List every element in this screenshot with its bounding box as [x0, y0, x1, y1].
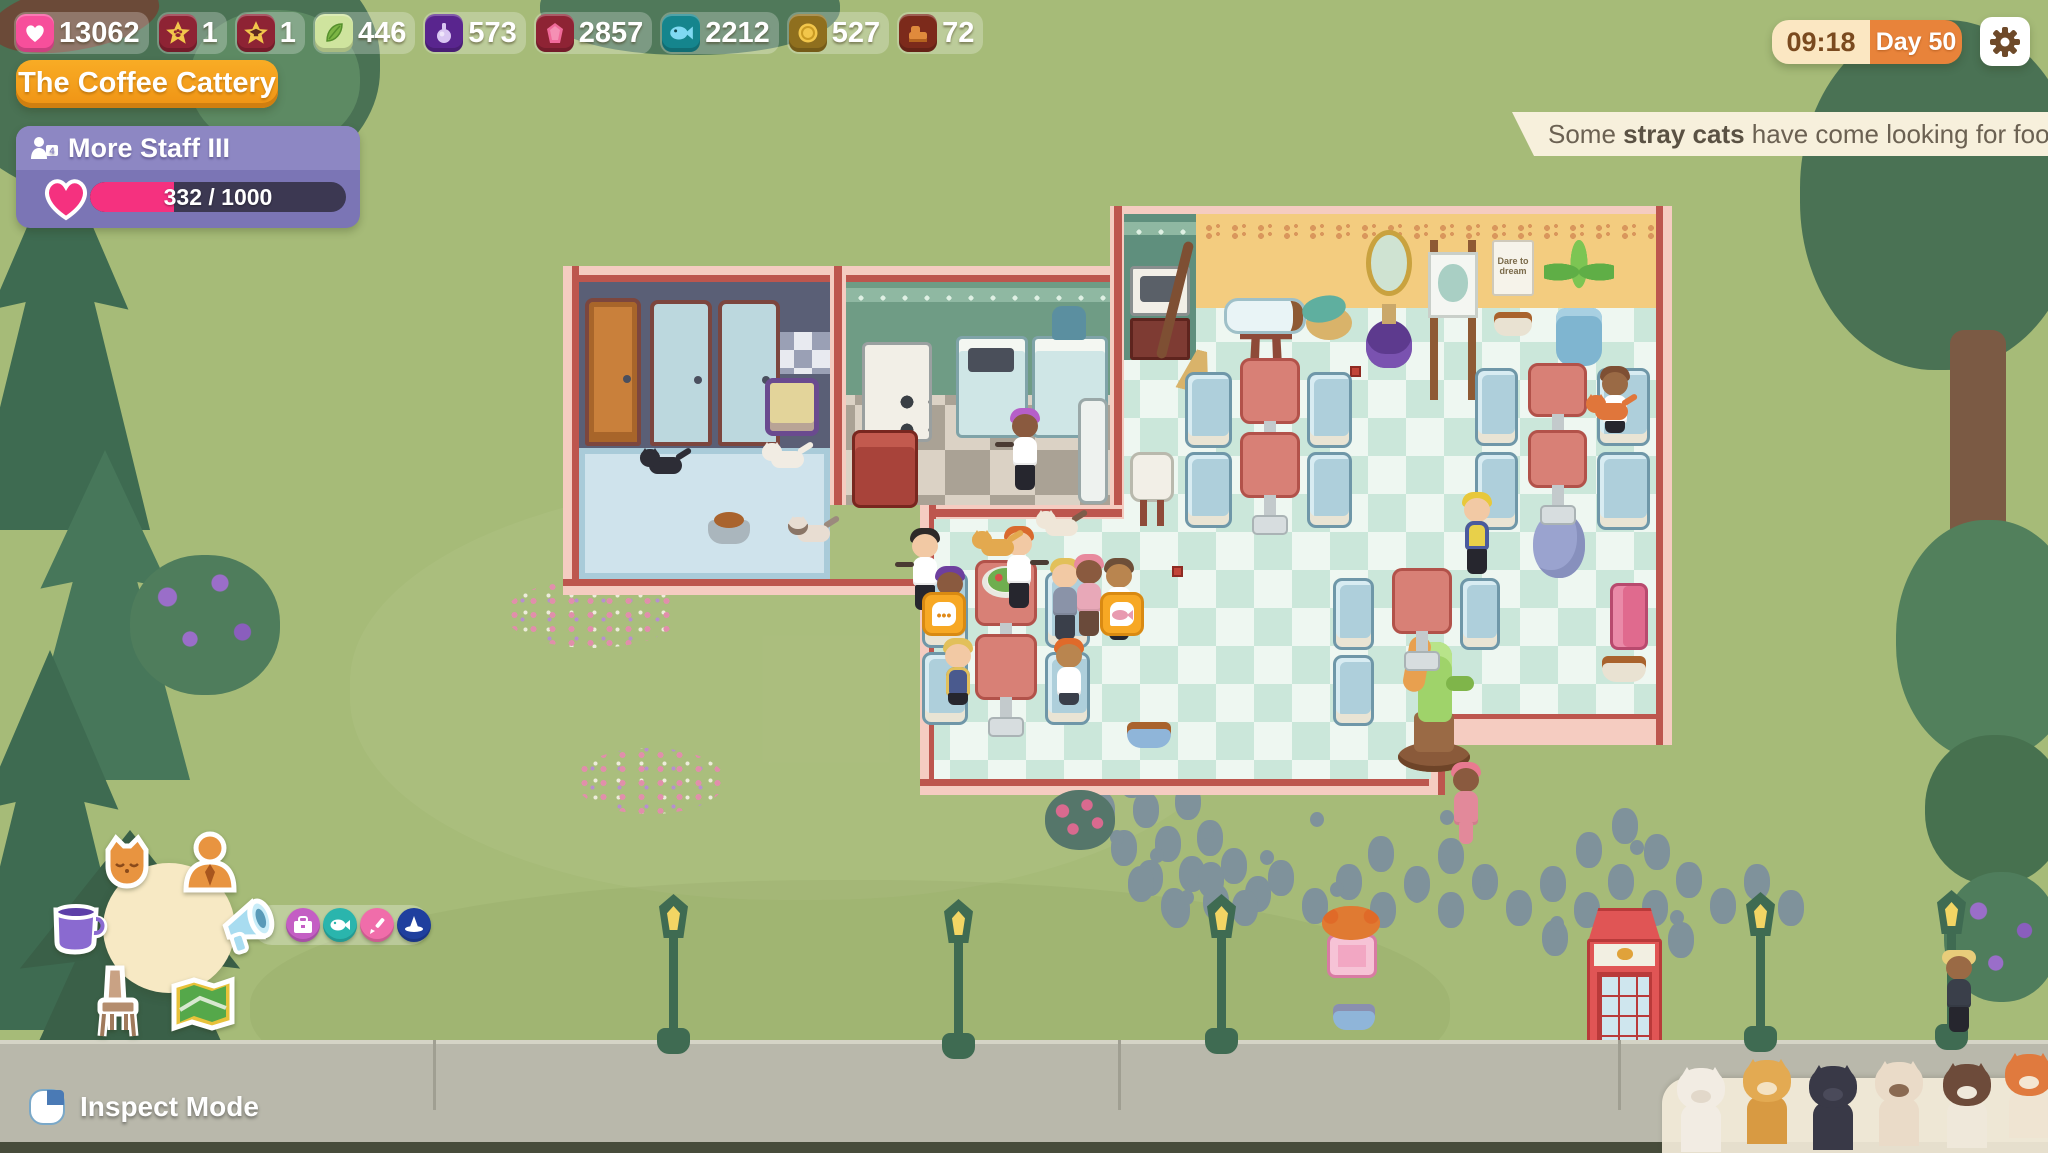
npc-staff-yellow-vest[interactable] [1460, 490, 1494, 578]
stove[interactable] [862, 342, 932, 442]
resource-value: 1 [280, 17, 296, 50]
wall [563, 266, 579, 595]
wall [563, 579, 930, 595]
diner-table[interactable] [975, 634, 1037, 700]
witch-hat-icon [403, 915, 425, 935]
npc-waiter-purple-hair[interactable] [1008, 406, 1042, 494]
cafe-name-button[interactable]: The Coffee Cattery [16, 60, 278, 108]
outdoor-cat-bowl[interactable] [1333, 1004, 1375, 1030]
wall [1656, 206, 1672, 745]
orange-tabby-cat[interactable] [2000, 1052, 2048, 1138]
goal-panel[interactable]: 4 More Staff III 332 / 1000 [16, 126, 360, 228]
resource-bar: 13062 1 1 446 573 2857 [14, 12, 983, 54]
diner-table[interactable] [1392, 568, 1452, 634]
light-switch[interactable] [1172, 566, 1183, 577]
saloon-door[interactable] [585, 298, 641, 446]
witchcraft-submenu[interactable] [397, 908, 431, 942]
booth-seat[interactable] [1597, 452, 1650, 530]
resource-furniture[interactable]: 72 [897, 12, 983, 54]
game-viewport: Dare to dream [0, 0, 2048, 1153]
resource-coins[interactable]: 527 [787, 12, 889, 54]
resource-value: 1 [202, 17, 218, 50]
ship-in-bottle[interactable] [1224, 298, 1306, 334]
potion-jar-neck [1382, 304, 1396, 324]
furniture-menu-icon[interactable] [88, 960, 152, 1046]
cat-food-dispenser[interactable] [1610, 583, 1648, 650]
fish-request-icon [1110, 602, 1134, 626]
goal-title: More Staff III [68, 133, 230, 164]
fish-icon [662, 14, 700, 52]
lilac-bush [130, 555, 280, 695]
potion-jar[interactable] [1366, 320, 1412, 368]
notification-text: Some stray cats have come looking for fo… [1548, 119, 2048, 149]
sidewalk-seam [1118, 1040, 1121, 1110]
fish-icon [329, 917, 351, 933]
fishing-submenu[interactable] [323, 908, 357, 942]
food-bowl[interactable] [1494, 312, 1532, 336]
inspect-mode-label: Inspect Mode [80, 1091, 259, 1123]
flower-patch [575, 748, 725, 814]
npc-woman-pink-dress[interactable] [1449, 760, 1483, 848]
paintbrush-icon [367, 915, 387, 935]
booth-seat[interactable] [1333, 578, 1374, 650]
potion-icon [425, 14, 463, 52]
siamese-cat[interactable] [1870, 1060, 1928, 1146]
mouse-icon [26, 1086, 68, 1128]
sidewalk-seam [433, 1040, 436, 1110]
gem-icon [536, 14, 574, 52]
goal-progress-text: 332 / 1000 [90, 182, 346, 212]
cat-food [714, 512, 744, 528]
coin-icon [789, 14, 827, 52]
lamppost [935, 893, 981, 1063]
npc-customer-orange-hair[interactable] [1052, 636, 1086, 702]
litter-box[interactable] [765, 378, 819, 436]
white-cat[interactable] [1672, 1066, 1730, 1152]
stand-mixer [1052, 306, 1086, 340]
staff-goal-icon: 4 [29, 135, 59, 161]
ginger-cat[interactable] [972, 528, 1018, 560]
booth-seat[interactable] [1185, 372, 1232, 448]
furniture-icon [899, 14, 937, 52]
booth-seat[interactable] [1185, 452, 1232, 528]
coffee-machine[interactable] [852, 430, 918, 508]
booth-seat[interactable] [1475, 368, 1518, 446]
resource-value: 446 [358, 17, 406, 50]
tree-canopy-right [1800, 20, 2048, 370]
sidewalk-seam [1618, 1040, 1621, 1110]
paw-print-border [1196, 224, 1656, 239]
poster[interactable]: Dare to dream [1492, 240, 1534, 296]
lamppost [1737, 886, 1783, 1056]
resource-value: 527 [832, 17, 880, 50]
siamese-cat-walking[interactable] [1036, 508, 1082, 540]
black-cat[interactable] [1804, 1064, 1862, 1150]
black-cat[interactable] [640, 446, 686, 478]
crab-sign[interactable] [1327, 934, 1377, 978]
training-star-icon [237, 14, 275, 52]
rose-bush[interactable] [1045, 790, 1115, 850]
grinder-stand[interactable] [1130, 452, 1174, 502]
resource-value: 72 [942, 17, 974, 50]
staff-menu-icon[interactable] [176, 826, 244, 898]
catnip-icon [315, 14, 353, 52]
lamppost [1198, 888, 1244, 1058]
wall [830, 266, 846, 505]
bush-right [1896, 520, 2048, 760]
speech-bubble-fish[interactable] [1100, 592, 1144, 636]
microwave [968, 348, 1014, 372]
palm-plant-pot[interactable] [1556, 308, 1602, 366]
orange-cat-on-lap[interactable] [1586, 392, 1632, 424]
marketing-menu-icon[interactable] [212, 890, 288, 958]
booth-seat[interactable] [1307, 452, 1352, 528]
crab-figure [1322, 906, 1380, 940]
map-menu-icon[interactable] [164, 972, 242, 1038]
food-bowl[interactable] [1602, 656, 1646, 682]
resource-value: 13062 [59, 17, 140, 50]
ragdoll-cat[interactable] [788, 514, 834, 546]
resource-skill-star-paw[interactable]: 1 [157, 12, 227, 54]
ginger-cat[interactable] [1738, 1058, 1796, 1144]
diner-table[interactable] [1240, 432, 1300, 498]
grinder-stand-legs [1138, 500, 1166, 526]
painting-blob [1438, 264, 1468, 302]
light-switch[interactable] [1350, 366, 1361, 377]
settings-button[interactable] [1980, 17, 2030, 66]
booth-seat[interactable] [1307, 372, 1352, 448]
fridge[interactable] [1078, 398, 1108, 504]
npc-gardener[interactable] [1942, 948, 1976, 1036]
resource-value: 573 [468, 17, 516, 50]
booth-seat[interactable] [1333, 655, 1374, 726]
gear-icon [1988, 25, 2022, 59]
resource-gem[interactable]: 2857 [534, 12, 653, 54]
brown-white-cat[interactable] [1938, 1062, 1996, 1148]
diner-table[interactable] [1528, 430, 1587, 488]
lamppost [650, 888, 696, 1058]
clock[interactable]: 09:18 Day 50 [1772, 20, 1962, 64]
oval-mirror[interactable] [1366, 230, 1412, 296]
speech-bubble-ellipsis[interactable]: ••• [922, 592, 966, 636]
drinks-menu-icon[interactable] [44, 898, 118, 960]
resource-skill-star-cap[interactable]: 1 [235, 12, 305, 54]
npc-customer-yellow-hat[interactable] [941, 636, 975, 702]
white-cat[interactable] [762, 440, 808, 472]
careers-submenu[interactable] [286, 908, 320, 942]
resource-value: 2212 [705, 17, 770, 50]
goal-heart-icon [40, 172, 92, 222]
resource-value: 2857 [579, 17, 644, 50]
utility-nook-border [1124, 222, 1196, 235]
briefcase-icon [293, 916, 313, 934]
cat-menu-icon[interactable] [94, 830, 160, 896]
bush-right-low [1925, 735, 2048, 885]
painting-submenu[interactable] [360, 908, 394, 942]
heart-icon [16, 14, 54, 52]
kitchen-wall-border [846, 288, 1110, 302]
booth-seat[interactable] [1460, 578, 1500, 650]
inspect-mode-toggle[interactable]: Inspect Mode [26, 1086, 259, 1128]
resource-fish[interactable]: 2212 [660, 12, 779, 54]
diner-table[interactable] [1240, 358, 1300, 424]
resource-potion[interactable]: 573 [423, 12, 525, 54]
day-display: Day 50 [1870, 20, 1962, 64]
time-display: 09:18 [1772, 20, 1870, 64]
poster-text: Dare to dream [1497, 256, 1528, 276]
svg-text:4: 4 [49, 146, 54, 156]
wall [1431, 712, 1672, 745]
paw-star-icon [159, 14, 197, 52]
resource-catnip[interactable]: 446 [313, 12, 415, 54]
diner-table[interactable] [1528, 363, 1587, 417]
resource-hearts[interactable]: 13062 [14, 12, 149, 54]
notification-banner[interactable]: Some stray cats have come looking for fo… [1512, 112, 2048, 156]
food-bowl[interactable] [1127, 722, 1171, 748]
goal-header: 4 More Staff III [16, 126, 360, 170]
restroom-door[interactable] [650, 300, 712, 446]
wall [920, 779, 1445, 795]
ellipsis-icon: ••• [932, 602, 956, 626]
